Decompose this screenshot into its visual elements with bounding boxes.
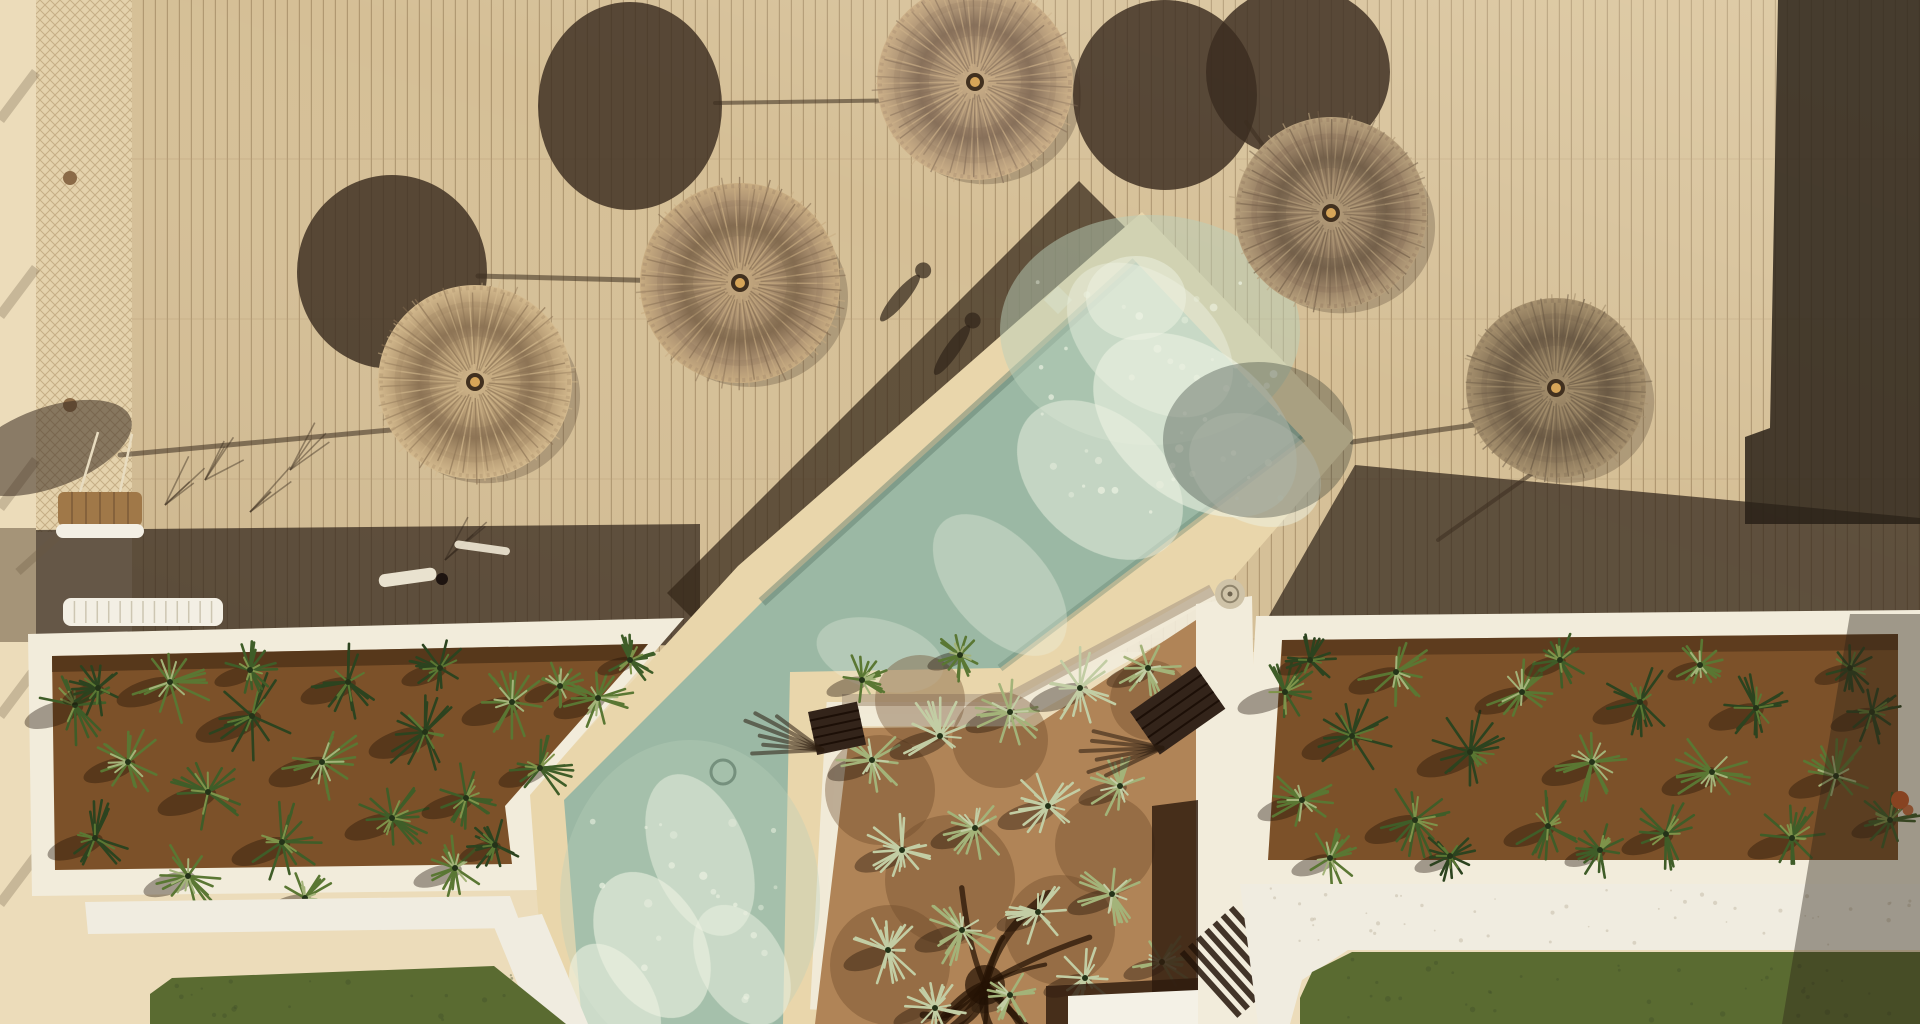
umbrella-pole-knot [1326, 208, 1336, 218]
umbrella-pole-knot [970, 77, 980, 87]
aerial-pool-photo [0, 0, 1920, 1024]
scene-canvas [0, 0, 1920, 1024]
planter-soil [1268, 634, 1898, 860]
white-path [85, 896, 522, 934]
umbrella-shadow [538, 2, 722, 210]
umbrella-pole-knot [735, 278, 745, 288]
umbrella-pole-knot [1551, 383, 1561, 393]
fence-post [63, 171, 77, 185]
umbrella-shadow-on-water [1163, 362, 1353, 518]
water-foam [1086, 256, 1186, 340]
umbrella-pole-knot [470, 377, 480, 387]
